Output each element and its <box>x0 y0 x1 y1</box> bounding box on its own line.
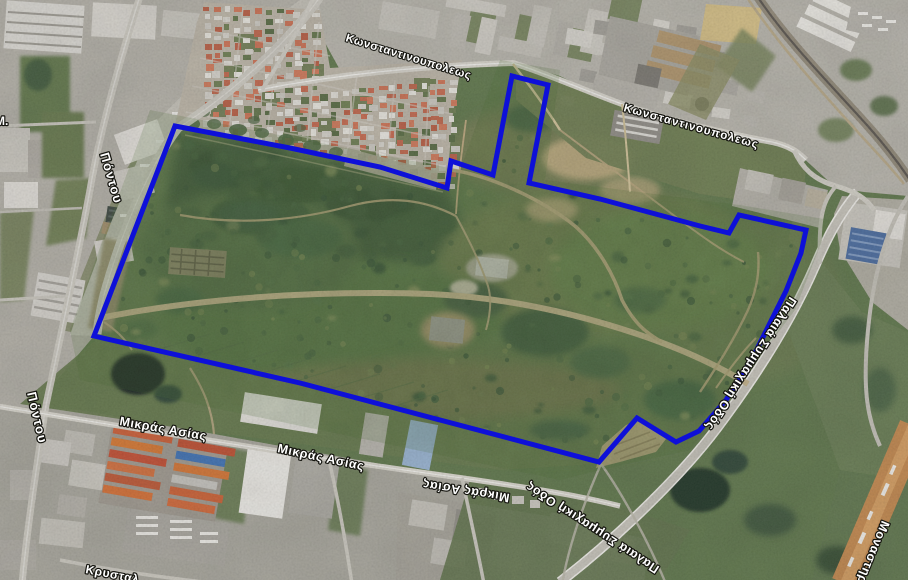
svg-text:Μ.: Μ. <box>0 114 8 128</box>
